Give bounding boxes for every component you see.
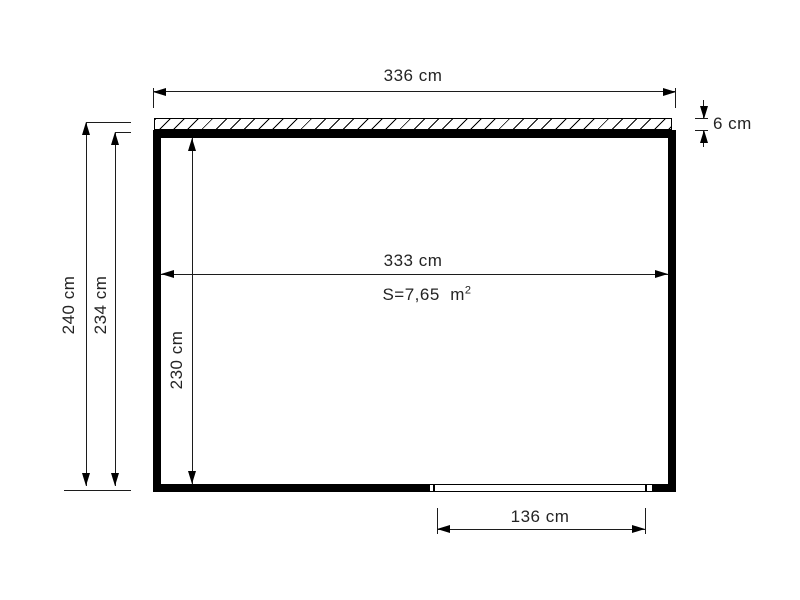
- dim-inner-width-arrowhead-right: [655, 270, 668, 278]
- roof-panel-hatch: [154, 118, 672, 130]
- building-walls: [153, 130, 676, 492]
- dim-outer-height-arrowhead-top: [82, 122, 90, 135]
- dim-inner-height-arrowhead-top: [188, 138, 196, 151]
- area-unit: m: [450, 285, 465, 304]
- dim-outer-width-ext-left: [153, 88, 154, 108]
- door-opening: [430, 484, 652, 492]
- dim-inner-width-label: 333 cm: [353, 251, 473, 271]
- door-jamb-left: [433, 484, 435, 492]
- dim-outer-height-line: [86, 122, 87, 486]
- dim-roof-arrowhead-up: [700, 130, 708, 143]
- dim-roof-tick-bottom: [695, 130, 708, 131]
- dim-wall-height-line: [115, 132, 116, 486]
- dim-outer-height-ext-top: [86, 122, 131, 123]
- dim-wall-height-ext-top: [115, 132, 131, 133]
- area-label: S=7,65 m2: [357, 285, 497, 305]
- dim-door-arrowhead-left: [437, 525, 450, 533]
- floor-plan-canvas: 336 cm 6 cm 240 cm 234 cm 230 cm 333 cm …: [0, 0, 800, 600]
- dim-outer-width-line: [153, 91, 676, 92]
- dim-inner-height-line: [192, 138, 193, 484]
- door-jamb-right: [645, 484, 647, 492]
- area-exponent: 2: [465, 284, 472, 296]
- dim-outer-height-label: 240 cm: [59, 265, 79, 345]
- dim-inner-height-label: 230 cm: [167, 320, 187, 400]
- dim-door-ext-right: [645, 508, 646, 534]
- dim-outer-width-ext-right: [675, 88, 676, 108]
- dim-outer-width-label: 336 cm: [353, 66, 473, 86]
- dim-wall-height-arrowhead-top: [111, 132, 119, 145]
- dim-inner-width-arrowhead-left: [161, 270, 174, 278]
- area-value: S=7,65: [382, 285, 439, 304]
- dim-door-line: [437, 529, 645, 530]
- dim-door-width-label: 136 cm: [480, 507, 600, 527]
- dim-inner-width-line: [161, 274, 668, 275]
- dim-roof-thickness-label: 6 cm: [713, 114, 752, 134]
- dim-inner-height-arrowhead-bottom: [188, 471, 196, 484]
- dim-wall-height-arrowhead-bottom: [111, 473, 119, 486]
- dim-outer-width-arrowhead-left: [153, 88, 166, 96]
- dim-left-ext-bottom: [64, 490, 131, 491]
- dim-outer-height-arrowhead-bottom: [82, 473, 90, 486]
- dim-wall-height-label: 234 cm: [91, 265, 111, 345]
- dim-door-arrowhead-right: [632, 525, 645, 533]
- dim-roof-tick-top: [695, 118, 708, 119]
